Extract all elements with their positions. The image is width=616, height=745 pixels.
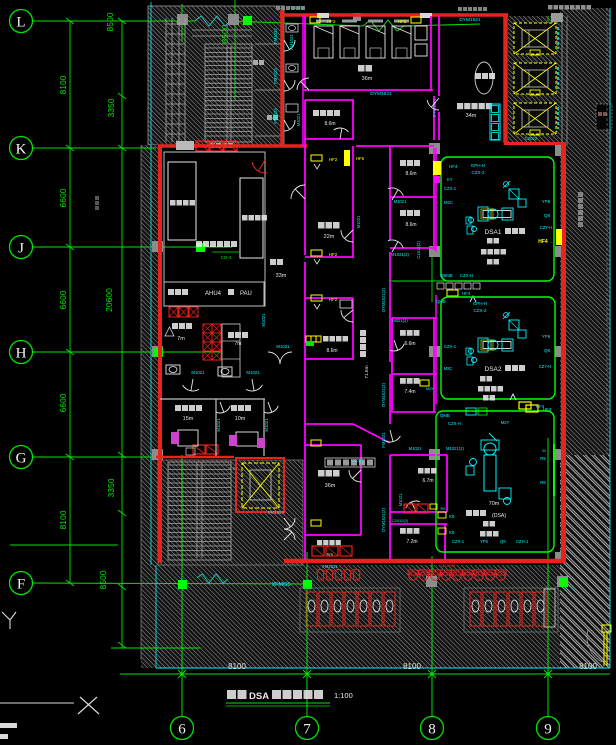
svg-text:QMB: QMB <box>440 413 450 418</box>
svg-text:HF4: HF4 <box>449 164 458 169</box>
svg-text:6600: 6600 <box>58 290 68 309</box>
svg-text:K: K <box>16 142 27 158</box>
svg-text:M1021: M1021 <box>398 493 403 506</box>
svg-text:8500: 8500 <box>98 570 108 589</box>
svg-text:8500: 8500 <box>220 24 230 43</box>
svg-text:M: M <box>542 448 545 453</box>
svg-text:M1021: M1021 <box>246 370 260 375</box>
svg-text:R5: R5 <box>440 506 446 511</box>
svg-text:AHU4: AHU4 <box>205 291 222 297</box>
svg-text:C2012(2): C2012(2) <box>392 518 409 523</box>
svg-text:DSA: DSA <box>249 691 269 702</box>
svg-text:M2Y: M2Y <box>501 420 510 425</box>
svg-text:FM1023: FM1023 <box>273 28 278 44</box>
svg-text:CD-4: CD-4 <box>221 255 232 260</box>
svg-text:M021(2): M021(2) <box>392 318 408 323</box>
svg-text:71.6m: 71.6m <box>364 365 370 378</box>
svg-text:G: G <box>16 451 27 467</box>
svg-text:FM1521: FM1521 <box>268 510 285 515</box>
svg-text:33m: 33m <box>276 273 287 279</box>
svg-text:Q8: Q8 <box>544 213 551 218</box>
svg-text:6.6m: 6.6m <box>404 341 415 347</box>
svg-text:10m: 10m <box>235 416 246 422</box>
svg-text:CZY-H: CZY-H <box>540 225 552 230</box>
svg-text:H: H <box>16 346 27 362</box>
svg-text:6600: 6600 <box>58 393 68 412</box>
svg-text:15m: 15m <box>183 416 194 422</box>
svg-text:8500: 8500 <box>105 12 115 31</box>
svg-text:7: 7 <box>303 722 311 738</box>
svg-text:20600: 20600 <box>104 288 114 312</box>
svg-text:M1021: M1021 <box>264 418 269 432</box>
svg-text:8.6m: 8.6m <box>326 348 337 354</box>
svg-text:8.6m: 8.6m <box>405 171 416 177</box>
svg-text:YP6: YP6 <box>542 199 551 204</box>
svg-text:HF4: HF4 <box>543 407 552 412</box>
svg-text:M1021: M1021 <box>394 199 407 204</box>
svg-text:DYM1521(2): DYM1521(2) <box>381 508 386 532</box>
svg-text:K5: K5 <box>449 514 455 519</box>
svg-text:HF4: HF4 <box>538 239 548 245</box>
svg-text:XFMG5: XFMG5 <box>272 582 291 588</box>
svg-text:M1021: M1021 <box>356 215 361 228</box>
svg-text:L: L <box>16 15 25 31</box>
svg-text:34m: 34m <box>466 113 477 119</box>
svg-text:8100: 8100 <box>58 510 68 529</box>
svg-text:8100: 8100 <box>58 75 68 94</box>
svg-text:FM1023: FM1023 <box>273 108 278 124</box>
svg-text:CZX-1: CZX-1 <box>452 539 465 544</box>
svg-text:CZX-2: CZX-2 <box>471 170 484 175</box>
svg-text:M2Y: M2Y <box>426 386 435 391</box>
svg-text:R5: R5 <box>540 456 546 461</box>
svg-text:FM1021: FM1021 <box>289 34 294 50</box>
svg-text:M1021: M1021 <box>216 418 221 432</box>
svg-text:HF2: HF2 <box>329 252 338 257</box>
svg-text:CZX-1: CZX-1 <box>444 186 457 191</box>
svg-text:1:100: 1:100 <box>334 691 353 700</box>
svg-text:CZX-H: CZX-H <box>460 273 473 278</box>
svg-text:HF2: HF2 <box>327 19 336 24</box>
svg-text:CZH-1: CZH-1 <box>516 539 529 544</box>
svg-text:KY: KY <box>447 177 453 182</box>
svg-text:DYM1521(2): DYM1521(2) <box>381 383 386 407</box>
svg-text:6.7m: 6.7m <box>422 478 433 484</box>
svg-text:PAU: PAU <box>240 291 252 297</box>
svg-text:HF5: HF5 <box>356 156 365 161</box>
svg-text:CZX-H: CZX-H <box>448 421 461 426</box>
svg-text:8: 8 <box>428 722 436 738</box>
svg-text:DSA1: DSA1 <box>485 229 502 236</box>
svg-text:6600: 6600 <box>58 188 68 207</box>
svg-text:70m: 70m <box>489 501 500 507</box>
svg-text:DYM1521(2): DYM1521(2) <box>381 288 386 312</box>
svg-text:(DSA): (DSA) <box>492 513 506 519</box>
svg-text:8.6m: 8.6m <box>405 222 416 228</box>
svg-text:22m: 22m <box>324 234 335 240</box>
svg-text:HF2: HF2 <box>329 297 338 302</box>
svg-text:M1021: M1021 <box>296 113 301 126</box>
svg-text:J: J <box>18 241 24 257</box>
svg-text:HF2: HF2 <box>329 157 338 162</box>
svg-text:8100: 8100 <box>403 662 421 671</box>
svg-text:Q8: Q8 <box>500 539 506 544</box>
svg-text:Q8: Q8 <box>544 348 551 353</box>
svg-text:7.4m: 7.4m <box>404 389 415 395</box>
svg-text:36m: 36m <box>362 76 373 82</box>
svg-text:GPH-H: GPH-H <box>473 301 488 306</box>
svg-text:C1612(2): C1612(2) <box>416 241 421 259</box>
svg-text:QBMB: QBMB <box>440 273 453 278</box>
svg-text:DSA2: DSA2 <box>485 366 502 373</box>
svg-text:8.6m: 8.6m <box>324 121 335 127</box>
svg-text:YP6: YP6 <box>542 334 551 339</box>
svg-text:←: ← <box>550 239 555 245</box>
svg-text:YP6: YP6 <box>480 539 489 544</box>
svg-text:FM1021: FM1021 <box>322 564 338 569</box>
svg-text:C2022: C2022 <box>525 136 538 141</box>
svg-text:M.S.BM: M.S.BM <box>441 563 455 568</box>
svg-text:CZY-H: CZY-H <box>539 364 551 369</box>
svg-text:3350: 3350 <box>106 98 116 117</box>
svg-text:CZX-2: CZX-2 <box>473 308 486 313</box>
svg-text:M1021: M1021 <box>409 446 422 451</box>
svg-text:M1021(2): M1021(2) <box>391 252 410 257</box>
svg-text:M2C: M2C <box>444 200 453 205</box>
svg-text:FM1021: FM1021 <box>381 432 386 448</box>
svg-text:7m: 7m <box>177 336 185 342</box>
svg-text:M1021: M1021 <box>351 458 364 463</box>
svg-text:M2C: M2C <box>444 366 453 371</box>
svg-text:M1021(2): M1021(2) <box>446 446 465 451</box>
svg-text:HF2: HF2 <box>398 19 407 24</box>
svg-text:8100: 8100 <box>228 662 246 671</box>
svg-text:CZX-1: CZX-1 <box>444 344 457 349</box>
svg-text:FM7023: FM7023 <box>273 68 278 84</box>
svg-text:DYM1521: DYM1521 <box>459 17 481 23</box>
svg-text:9: 9 <box>544 722 552 738</box>
svg-text:K5: K5 <box>449 530 455 535</box>
svg-text:M1021: M1021 <box>191 370 205 375</box>
svg-text:F: F <box>17 577 25 593</box>
svg-text:HF4: HF4 <box>462 291 471 296</box>
svg-text:GPH-H: GPH-H <box>471 163 486 168</box>
svg-text:3350: 3350 <box>106 478 116 497</box>
svg-text:8100: 8100 <box>579 662 597 671</box>
svg-text:7.2m: 7.2m <box>406 539 417 545</box>
svg-text:M1021: M1021 <box>276 344 290 349</box>
svg-text:R6: R6 <box>540 480 546 485</box>
svg-text:M1021: M1021 <box>261 313 266 327</box>
svg-text:36m: 36m <box>325 483 336 489</box>
svg-text:6: 6 <box>178 722 186 738</box>
svg-text:DYM1521: DYM1521 <box>370 91 392 97</box>
svg-text:7.8: 7.8 <box>229 466 236 471</box>
